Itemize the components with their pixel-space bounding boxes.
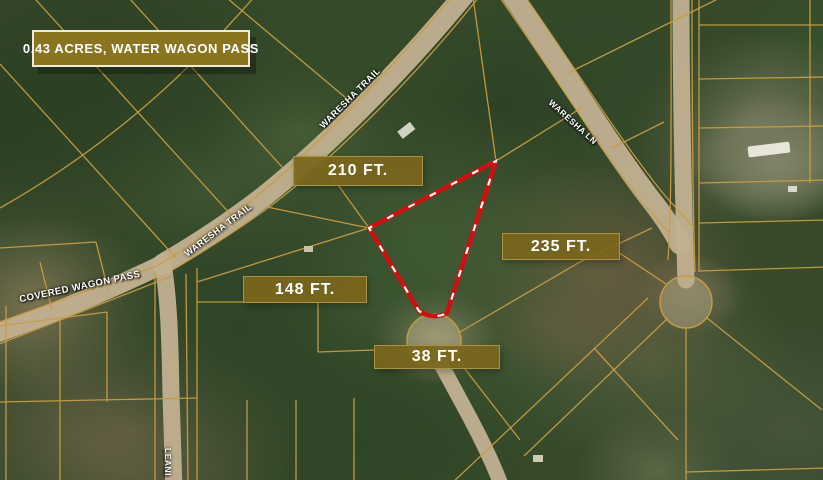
measurement-label-east-235ft: 235 FT. — [502, 233, 620, 260]
road-right-vertical — [681, 0, 686, 280]
measurement-label-north-210ft: 210 FT. — [293, 156, 423, 186]
road-culdesac-stub — [442, 366, 502, 480]
road-waresha-ln — [505, 0, 680, 244]
satellite-map-graphics — [0, 0, 823, 480]
street-label-leaning-road: LEANI — [163, 448, 173, 476]
culdesac-right — [660, 276, 712, 328]
parcel-lines-layer — [0, 0, 823, 480]
measurement-label-southwest-148ft: 148 FT. — [243, 276, 367, 303]
map-canvas: WARESHA TRAIL WARESHA TRAIL WARESHA LN C… — [0, 0, 823, 480]
listing-title-badge: 0.43 ACRES, WATER WAGON PASS — [32, 30, 250, 67]
measurement-label-south-38ft: 38 FT. — [374, 345, 500, 369]
